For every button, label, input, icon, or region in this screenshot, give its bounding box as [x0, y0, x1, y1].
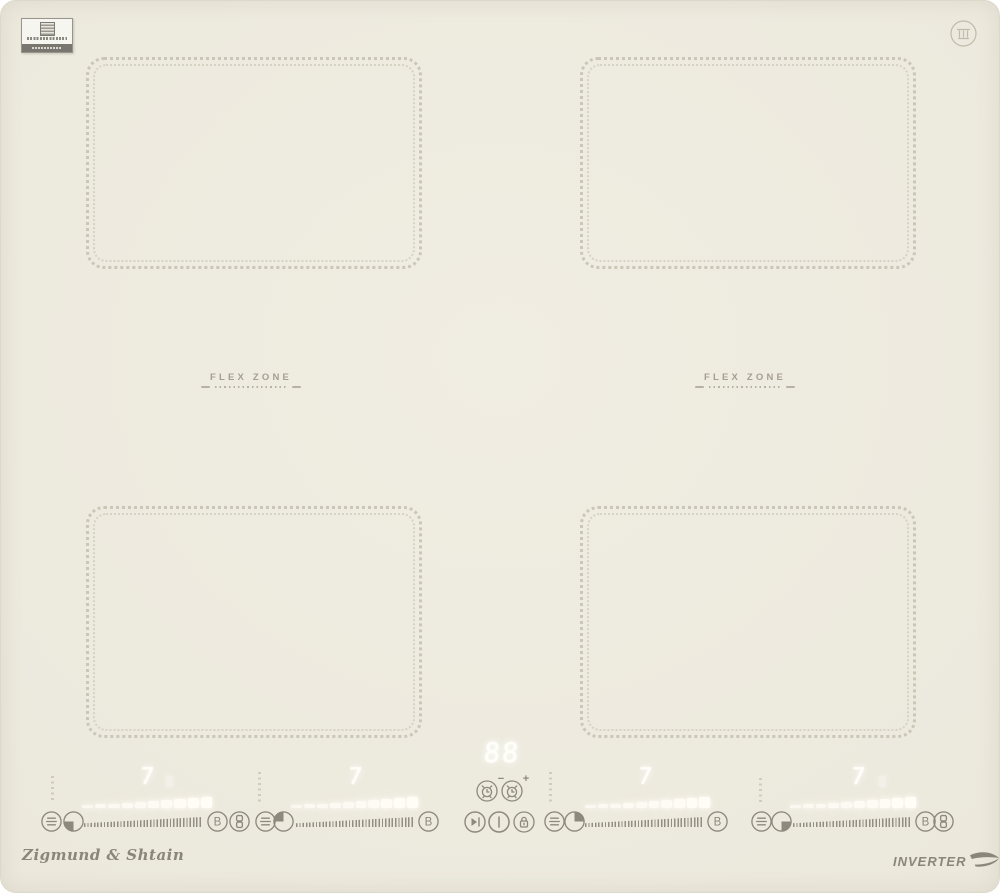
zone-timer-button-3[interactable]	[563, 810, 586, 833]
svg-text:B: B	[214, 817, 222, 829]
induction-cooktop-photo: FLEX ZONE FLEX ZONE 7 7 7 7	[0, 0, 1000, 893]
cooking-zone-front-left	[86, 506, 422, 738]
power-segment-bar-4	[790, 797, 916, 808]
zone-timer-button-4[interactable]	[770, 810, 793, 833]
display-ghost-segment-1	[166, 776, 173, 787]
cookware-emblem-icon	[949, 19, 978, 53]
flex-zone-label-right: FLEX ZONE	[580, 372, 910, 383]
svg-text:B: B	[714, 817, 722, 829]
unlit-indicator-strip-4	[759, 778, 762, 803]
badge-logo-glyph	[40, 22, 55, 36]
power-level-display-4: 7	[844, 764, 872, 790]
power-level-display-2: 7	[341, 764, 369, 790]
power-on-off-button[interactable]	[487, 810, 510, 833]
boost-button-3[interactable]: B	[706, 810, 729, 833]
inverter-swoosh-icon	[969, 849, 1000, 874]
boost-button-2[interactable]: B	[417, 810, 440, 833]
timer-plus-sign: +	[521, 773, 531, 785]
cooking-zone-front-right	[580, 506, 916, 738]
inverter-logo: INVERTER	[893, 849, 1000, 874]
unlit-indicator-strip-2	[258, 772, 261, 802]
power-segment-bar-3	[585, 797, 710, 808]
brand-logo-text: Zigmund & Shtain	[22, 846, 184, 864]
flex-zone-divider-right	[580, 386, 910, 388]
display-ghost-segment-4	[879, 776, 886, 787]
power-level-display-1: 7	[133, 764, 161, 790]
zone-timer-button-2[interactable]	[272, 810, 295, 833]
bridge-zones-button-right[interactable]	[932, 810, 955, 833]
boost-button-1[interactable]: B	[206, 810, 229, 833]
flex-zone-label-left: FLEX ZONE	[86, 372, 416, 383]
flex-zone-divider-left	[86, 386, 416, 388]
pause-resume-button[interactable]	[463, 810, 486, 833]
cooking-zone-rear-right	[580, 57, 916, 269]
child-lock-button[interactable]	[512, 810, 535, 833]
power-level-display-3: 7	[631, 764, 659, 790]
power-segment-bar-2	[291, 797, 418, 808]
inverter-label: INVERTER	[893, 854, 967, 869]
unlit-indicator-strip-1	[51, 776, 54, 800]
power-segment-bar-1	[82, 797, 212, 808]
glass-brand-badge	[21, 18, 73, 53]
bridge-zones-button-left[interactable]	[228, 810, 251, 833]
keep-warm-button-1[interactable]	[40, 810, 63, 833]
zone-timer-button-1[interactable]	[62, 810, 85, 833]
unlit-indicator-strip-3	[549, 772, 552, 805]
svg-text:B: B	[922, 817, 930, 829]
svg-text:B: B	[425, 817, 433, 829]
cooking-zone-rear-left	[86, 57, 422, 269]
badge-dark-band	[22, 44, 72, 52]
badge-microtext-line	[27, 37, 67, 40]
timer-display: 88	[477, 740, 527, 768]
